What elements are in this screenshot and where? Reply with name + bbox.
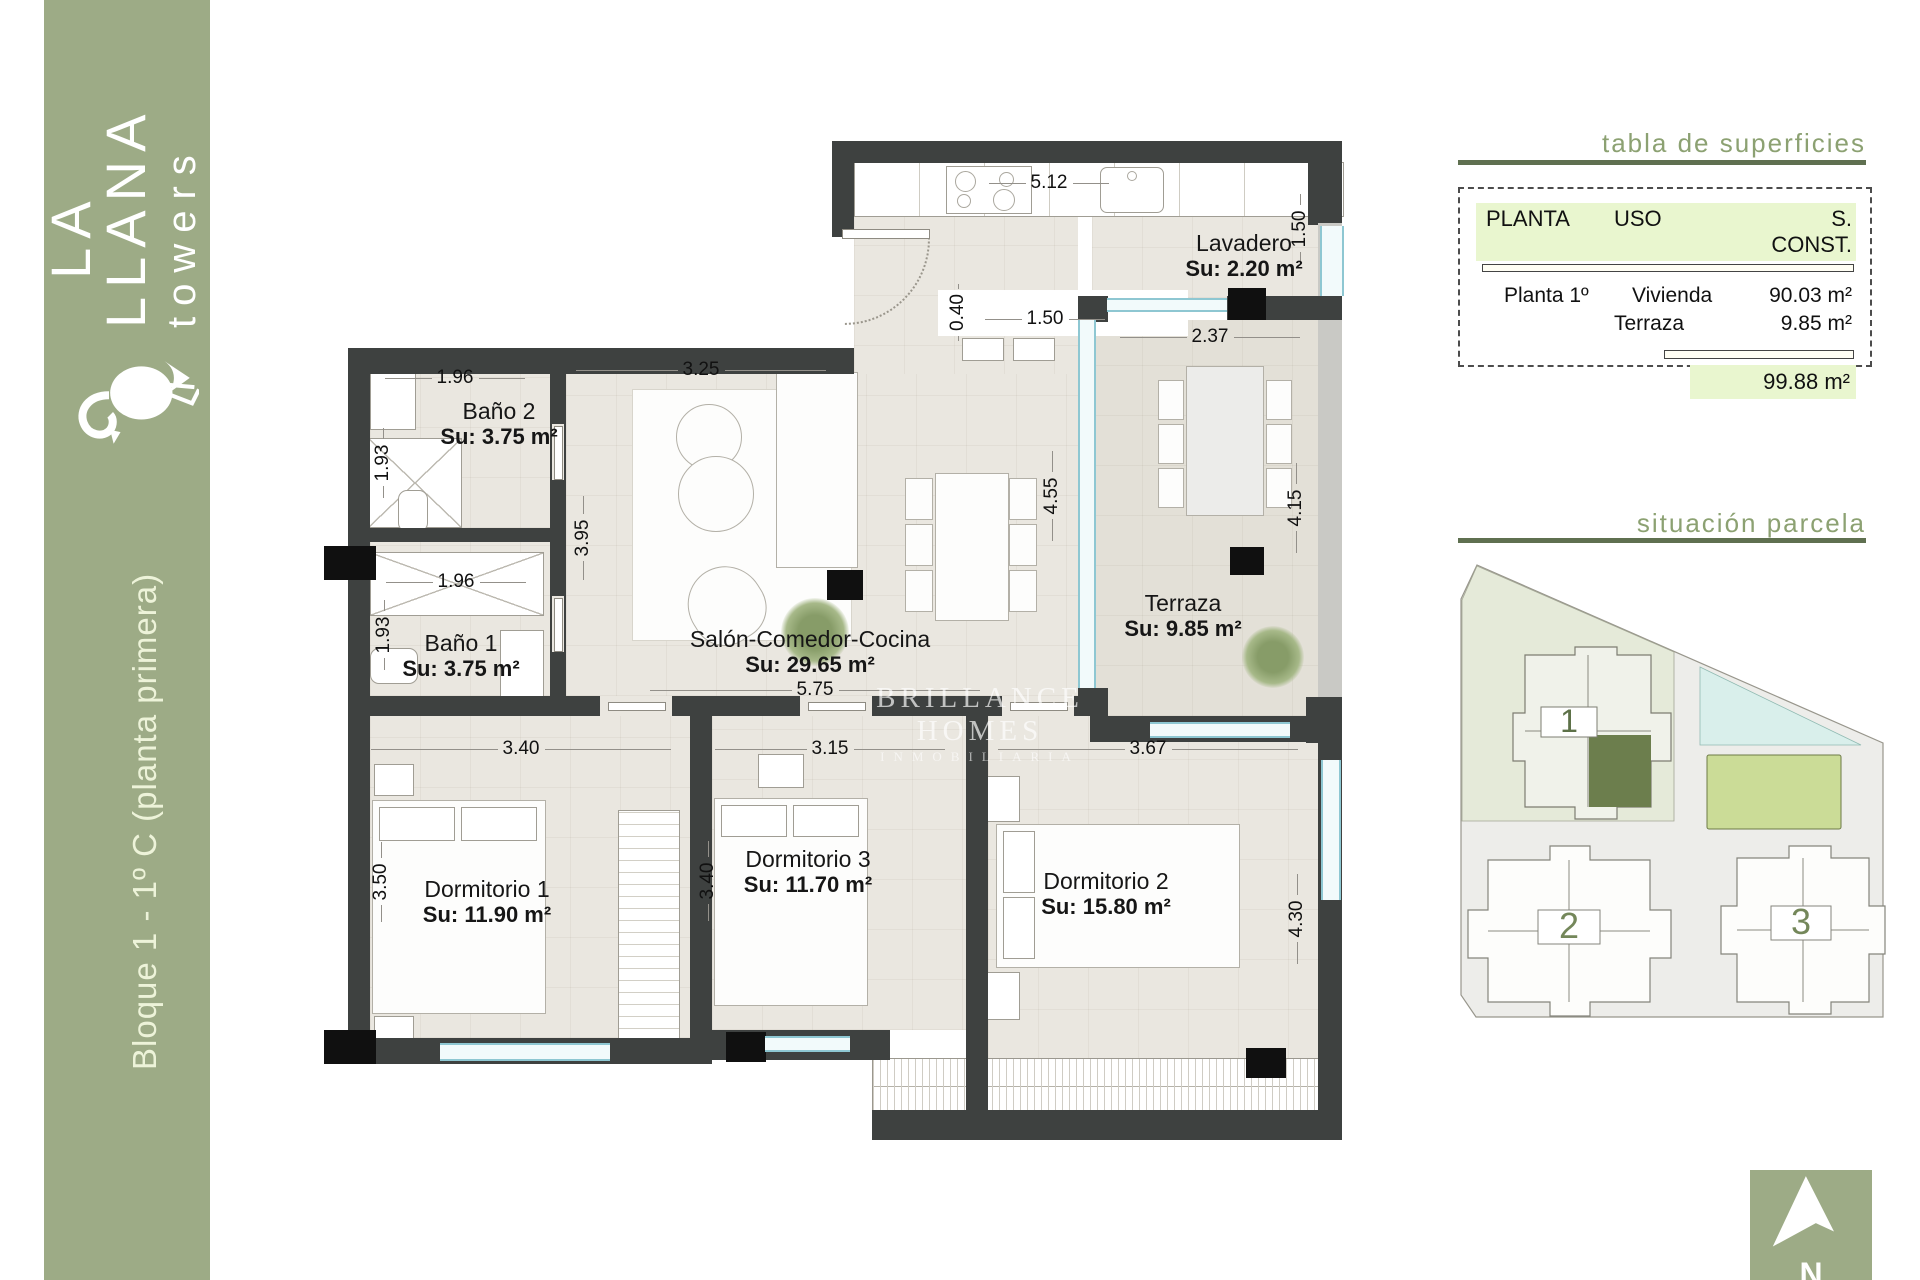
dining-table <box>935 473 1009 621</box>
room-label-bano2: Baño 2 Su: 3.75 m² <box>399 398 599 449</box>
building-2-number: 2 <box>1559 905 1579 946</box>
pillar <box>324 1030 376 1064</box>
pillow <box>721 805 787 837</box>
wall <box>368 528 552 542</box>
wall <box>832 141 1342 163</box>
room-name: Lavadero <box>1154 230 1334 256</box>
cell-planta: Planta 1º <box>1476 284 1632 308</box>
room-name: Dormitorio 3 <box>698 846 918 872</box>
site-rule <box>1458 538 1866 543</box>
entrance-door-leaf <box>842 229 930 239</box>
room-area: Su: 15.80 m² <box>996 894 1216 919</box>
window <box>1150 722 1290 738</box>
building-3: 3 <box>1721 846 1885 1014</box>
dim-island-depth: 0.40 <box>947 285 969 341</box>
col-planta: PLANTA <box>1476 206 1614 232</box>
building-1: 1 <box>1513 647 1671 819</box>
north-label: N <box>1750 1256 1872 1280</box>
header-underline <box>1482 264 1854 272</box>
dim-dorm2-height: 4.30 <box>1286 874 1308 964</box>
dim-bano2-width: 1.96 <box>385 367 525 389</box>
pouf <box>678 456 754 532</box>
col-uso: USO <box>1614 206 1746 232</box>
pillow <box>461 807 537 841</box>
pool-rect <box>1707 755 1841 829</box>
cell-value: 90.03 m² <box>1764 284 1856 308</box>
room-area: Su: 9.85 m² <box>1093 616 1273 641</box>
room-name: Salón-Comedor-Cocina <box>650 626 970 652</box>
col-sconst: S. CONST. <box>1746 206 1856 258</box>
flamingo-icon <box>49 342 199 460</box>
unit-label: Bloque 1 - 1º C (planta primera) <box>126 478 170 1078</box>
room-label-salon: Salón-Comedor-Cocina Su: 29.65 m² <box>650 626 970 677</box>
brand-sub: towers <box>160 106 205 328</box>
room-area: Su: 29.65 m² <box>650 652 970 677</box>
building-3-number: 3 <box>1791 901 1811 942</box>
dim-dorm2-width: 3.67 <box>998 738 1298 760</box>
room-label-lavadero: Lavadero Su: 2.20 m² <box>1154 230 1334 281</box>
wall <box>1308 141 1342 225</box>
stool <box>962 338 1004 361</box>
chair <box>905 524 933 566</box>
north-arrow-icon <box>1750 1170 1872 1256</box>
room-area: Su: 3.75 m² <box>361 656 561 681</box>
window <box>1107 298 1227 312</box>
dim-salon-left-height: 3.95 <box>572 496 594 580</box>
room-label-bano1: Baño 1 Su: 3.75 m² <box>361 630 561 681</box>
stool <box>1013 338 1055 361</box>
room-area: Su: 3.75 m² <box>399 424 599 449</box>
nightstand <box>374 764 414 796</box>
chair <box>1266 380 1292 420</box>
room-area: Su: 11.70 m² <box>698 872 918 897</box>
dim-dorm3-width: 3.15 <box>715 738 945 760</box>
room-label-dorm2: Dormitorio 2 Su: 15.80 m² <box>996 868 1216 919</box>
chair <box>1266 424 1292 464</box>
chair <box>1009 478 1037 520</box>
brand-inner: LA LLANA towers <box>44 0 205 460</box>
room-label-dorm3: Dormitorio 3 Su: 11.70 m² <box>698 846 918 897</box>
chair <box>1158 380 1184 420</box>
dim-island-width: 1.50 <box>985 308 1105 330</box>
dim-kitchen-width: 5.12 <box>989 172 1109 194</box>
room-name: Dormitorio 2 <box>996 868 1216 894</box>
unit-label-block: Bloque 1 - 1º C (planta primera) <box>126 478 292 1078</box>
pillar <box>1246 1048 1286 1078</box>
sidebar: LA LLANA towers Bloque 1 - 1º C (planta … <box>44 0 210 1280</box>
dim-terraza-height: 4.15 <box>1285 463 1307 553</box>
faucet <box>1127 171 1137 181</box>
dim-bano1-width: 1.96 <box>386 571 526 593</box>
pillow <box>793 805 859 837</box>
building-2: 2 <box>1468 846 1671 1016</box>
cell-uso: Vivienda <box>1632 284 1764 308</box>
sofa <box>776 372 858 568</box>
room-name: Terraza <box>1093 590 1273 616</box>
page: { "sidebar": { "brand_big": " LA\nLLANA"… <box>0 0 1920 1280</box>
total-value: 99.88 m² <box>1690 365 1856 399</box>
window <box>440 1043 610 1061</box>
brand-name: LA LLANA <box>44 106 154 328</box>
room-area: Su: 2.20 m² <box>1154 256 1334 281</box>
dim-bano2-height: 1.93 <box>372 428 394 498</box>
north-compass: N <box>1750 1170 1872 1280</box>
window <box>765 1036 850 1052</box>
chair <box>905 570 933 612</box>
pillar <box>726 1032 766 1062</box>
wall <box>966 716 988 1140</box>
total-underline <box>1664 350 1854 359</box>
chair <box>1009 570 1037 612</box>
side-table <box>827 570 863 600</box>
surfaces-header-row: PLANTA USO S. CONST. <box>1476 203 1856 261</box>
surfaces-table: PLANTA USO S. CONST. Planta 1º Vivienda … <box>1458 187 1872 367</box>
chair <box>1009 524 1037 566</box>
door-leaf <box>608 702 666 711</box>
room-area: Su: 11.90 m² <box>377 902 597 927</box>
bed-dorm3 <box>714 798 868 1006</box>
room-name: Baño 2 <box>399 398 599 424</box>
surfaces-title: tabla de superficies <box>1458 128 1866 159</box>
terrace-table <box>1186 366 1264 516</box>
wall <box>832 141 854 237</box>
brand-text: LA LLANA towers <box>44 106 205 328</box>
site-title: situación parcela <box>1458 508 1866 539</box>
pillar <box>324 546 376 580</box>
pillow <box>379 807 455 841</box>
burner <box>955 171 976 192</box>
surfaces-rule <box>1458 160 1866 165</box>
bano2-toilet <box>398 490 428 532</box>
window <box>1321 760 1341 900</box>
dim-salon-height: 4.55 <box>1041 451 1063 541</box>
brand-block: LA LLANA towers <box>44 0 210 460</box>
terrace-table-small <box>1230 547 1264 575</box>
cell-uso: Terraza <box>1614 312 1746 336</box>
wall <box>872 1110 1342 1140</box>
chair <box>905 478 933 520</box>
room-label-dorm1: Dormitorio 1 Su: 11.90 m² <box>377 876 597 927</box>
chair <box>1158 468 1184 508</box>
burner <box>957 194 971 208</box>
dim-terraza-width: 2.37 <box>1120 326 1300 348</box>
cell-value: 9.85 m² <box>1746 312 1856 336</box>
door-leaf <box>808 702 866 711</box>
room-name: Dormitorio 1 <box>377 876 597 902</box>
door-leaf <box>1010 702 1068 711</box>
wardrobe <box>618 810 680 1042</box>
table-row: Terraza 9.85 m² <box>1476 312 1856 336</box>
table-row: Planta 1º Vivienda 90.03 m² <box>1476 284 1856 308</box>
wall <box>1078 688 1108 716</box>
dim-salon-width: 5.75 <box>650 679 980 701</box>
dim-dorm1-width: 3.40 <box>371 738 671 760</box>
site-map: 1 2 3 <box>1455 555 1895 1035</box>
room-label-terraza: Terraza Su: 9.85 m² <box>1093 590 1273 641</box>
terrace-door-block <box>1228 288 1266 320</box>
highlighted-unit <box>1589 735 1651 807</box>
chair <box>1158 424 1184 464</box>
sink-icon <box>1100 167 1164 213</box>
dim-salon-top-width: 3.25 <box>576 359 826 381</box>
pool-triangle <box>1700 667 1861 745</box>
room-name: Baño 1 <box>361 630 561 656</box>
building-1-number: 1 <box>1560 703 1578 739</box>
